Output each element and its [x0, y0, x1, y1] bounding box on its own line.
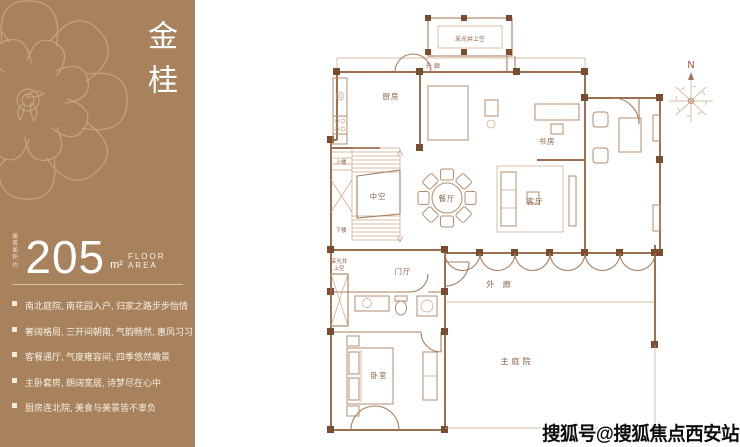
north-corridor: 外 廊 — [337, 58, 585, 72]
floor-plan-area: 采光井上空 外 廊 — [195, 0, 740, 447]
bullet-square-icon — [12, 378, 17, 383]
feature-item: 南北庭院, 南花园入户, 归家之路步步怡情 — [12, 299, 193, 312]
living-room: 客厅 — [497, 166, 576, 232]
bullet-square-icon — [12, 327, 17, 332]
dining-room: 餐厅 — [418, 169, 476, 227]
label-light-well-top: 采光井上空 — [455, 35, 485, 43]
compass-north-label: N — [687, 60, 694, 71]
feature-text: 奢阔格局, 三开间朝南, 气韵畅然, 惠风习习 — [25, 325, 193, 338]
page-title: 金桂 — [137, 20, 181, 108]
bullet-square-icon — [12, 352, 17, 357]
feature-list: 南北庭院, 南花园入户, 归家之路步步怡情 奢阔格局, 三开间朝南, 气韵畅然,… — [12, 299, 193, 427]
bullet-square-icon — [12, 403, 17, 408]
staircase: 中空 上楼 下楼 — [331, 148, 403, 242]
label-study: 书房 — [539, 136, 556, 146]
outer-corridor-right: 外 廊 — [445, 253, 655, 302]
feature-text: 客餐通厅, 气度雍容间, 四季悠然瞰景 — [25, 350, 170, 363]
label-kitchen: 厨房 — [383, 91, 400, 101]
label-bedroom: 卧室 — [371, 370, 388, 380]
label-stairs-up: 上楼 — [335, 158, 347, 166]
area-value: 205 — [25, 239, 105, 277]
area-unit: m² — [110, 259, 123, 271]
main-courtyard: 主庭院 — [445, 345, 655, 428]
feature-item: 奢阔格局, 三开间朝南, 气韵畅然, 惠风习习 — [12, 325, 193, 338]
label-light-well-left-2: 上空 — [333, 264, 345, 272]
feature-item: 厨房连北院, 美食与美景皆不辜负 — [12, 401, 193, 414]
compass-rose: N — [669, 60, 713, 122]
label-living: 客厅 — [527, 196, 544, 206]
feature-item: 主卧套房, 朗阔宽居, 诗梦尽在心中 — [12, 376, 193, 389]
label-outer-corridor-right: 外 廊 — [486, 279, 514, 289]
label-main-courtyard: 主庭院 — [501, 356, 534, 366]
label-void: 中空 — [370, 191, 387, 201]
floor-plan: 采光井上空 外 廊 — [195, 0, 740, 447]
area-label: FLOOR AREA — [128, 252, 195, 270]
sidebar: 金桂 建筑 面积 约 205 m² FLOOR AREA 南北庭院, 南花园入户… — [0, 0, 195, 447]
feature-text: 主卧套房, 朗阔宽居, 诗梦尽在心中 — [25, 376, 161, 389]
feature-text: 厨房连北院, 美食与美景皆不辜负 — [25, 401, 156, 414]
label-light-well-left-1: 采光井 — [331, 257, 348, 265]
watermark: 搜狐号@搜狐焦点西安站 — [542, 419, 739, 446]
floor-area-block: 建筑 面积 约 205 m² FLOOR AREA — [10, 234, 195, 277]
porch-seating — [593, 112, 660, 231]
feature-text: 南北庭院, 南花园入户, 归家之路步步怡情 — [25, 299, 188, 312]
bullet-square-icon — [12, 301, 17, 306]
label-stairs-down: 下楼 — [335, 226, 347, 234]
study: 书房 — [535, 104, 579, 146]
bedroom: 卧室 — [347, 336, 437, 416]
feature-item: 客餐通厅, 气度雍容间, 四季悠然瞰景 — [12, 350, 193, 363]
divider — [12, 284, 183, 285]
kitchen: 厨房 — [333, 78, 498, 144]
area-prefix: 建筑 面积 约 — [10, 234, 20, 270]
label-dining: 餐厅 — [439, 194, 456, 203]
label-foyer: 门厅 — [395, 267, 412, 276]
page: 金桂 建筑 面积 约 205 m² FLOOR AREA 南北庭院, 南花园入户… — [0, 0, 740, 447]
